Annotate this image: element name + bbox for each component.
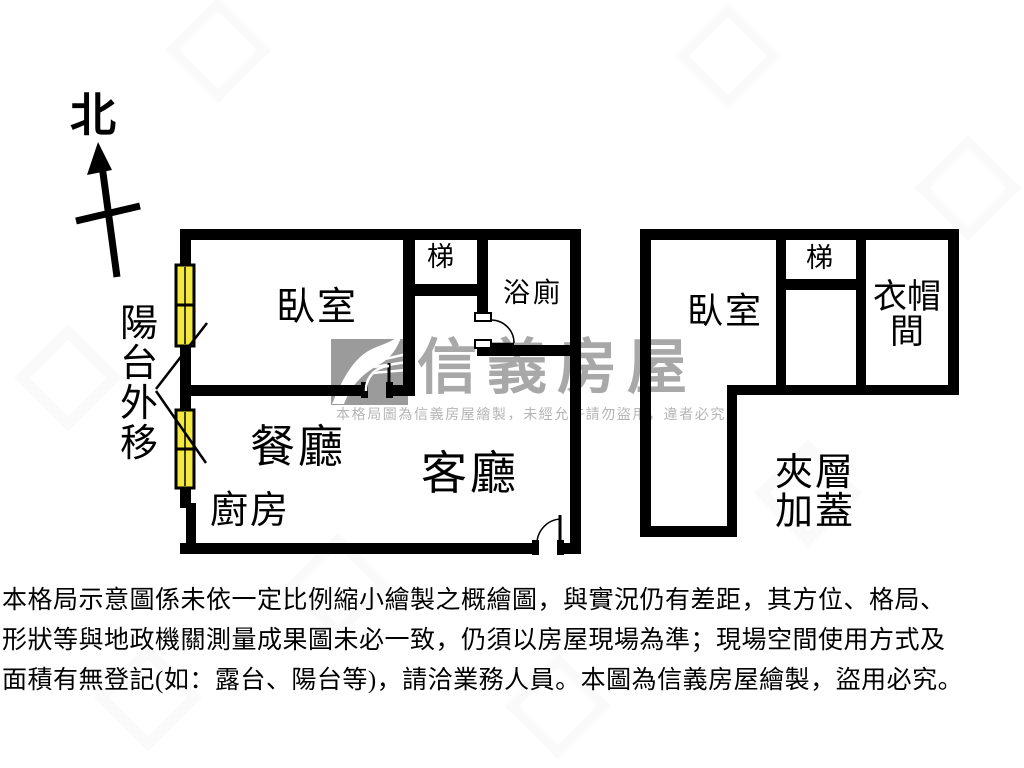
- bathroom-label: 浴廁: [503, 279, 563, 307]
- kitchen-label: 廚房: [210, 492, 290, 532]
- disclaimer-text: 本格局示意圖係未依一定比例縮小繪製之概繪圖，與實況仍有差距，其方位、格局、 形狀…: [2, 581, 1023, 701]
- disclaimer-line-1: 本格局示意圖係未依一定比例縮小繪製之概繪圖，與實況仍有差距，其方位、格局、: [2, 581, 1023, 621]
- closet-label: 衣帽間: [866, 280, 948, 350]
- north-label: 北: [70, 92, 116, 140]
- dining-room-label: 餐廳: [250, 424, 346, 471]
- mezzanine-label: 夾層加蓋: [775, 454, 861, 532]
- right-bedroom-label: 臥室: [687, 293, 763, 331]
- right-stairs-label: 梯: [806, 244, 833, 272]
- left-stairs-label: 梯: [427, 243, 454, 271]
- balcony-note-label: 陽台外移: [118, 304, 160, 464]
- left-bedroom-label: 臥室: [276, 288, 358, 329]
- living-room-label: 客廳: [421, 450, 519, 498]
- disclaimer-line-3: 面積有無登記(如：露台、陽台等)，請洽業務人員。本圖為信義房屋繪製，盜用必究。: [2, 661, 1023, 701]
- disclaimer-line-2: 形狀等與地政機關測量成果圖未必一致，仍須以房屋現場為準；現場空間使用方式及: [2, 621, 1023, 661]
- floor-plan-image: 信義房屋 本格局圖為信義房屋繪製，未經允許請勿盜用，違者必究: [0, 0, 1024, 768]
